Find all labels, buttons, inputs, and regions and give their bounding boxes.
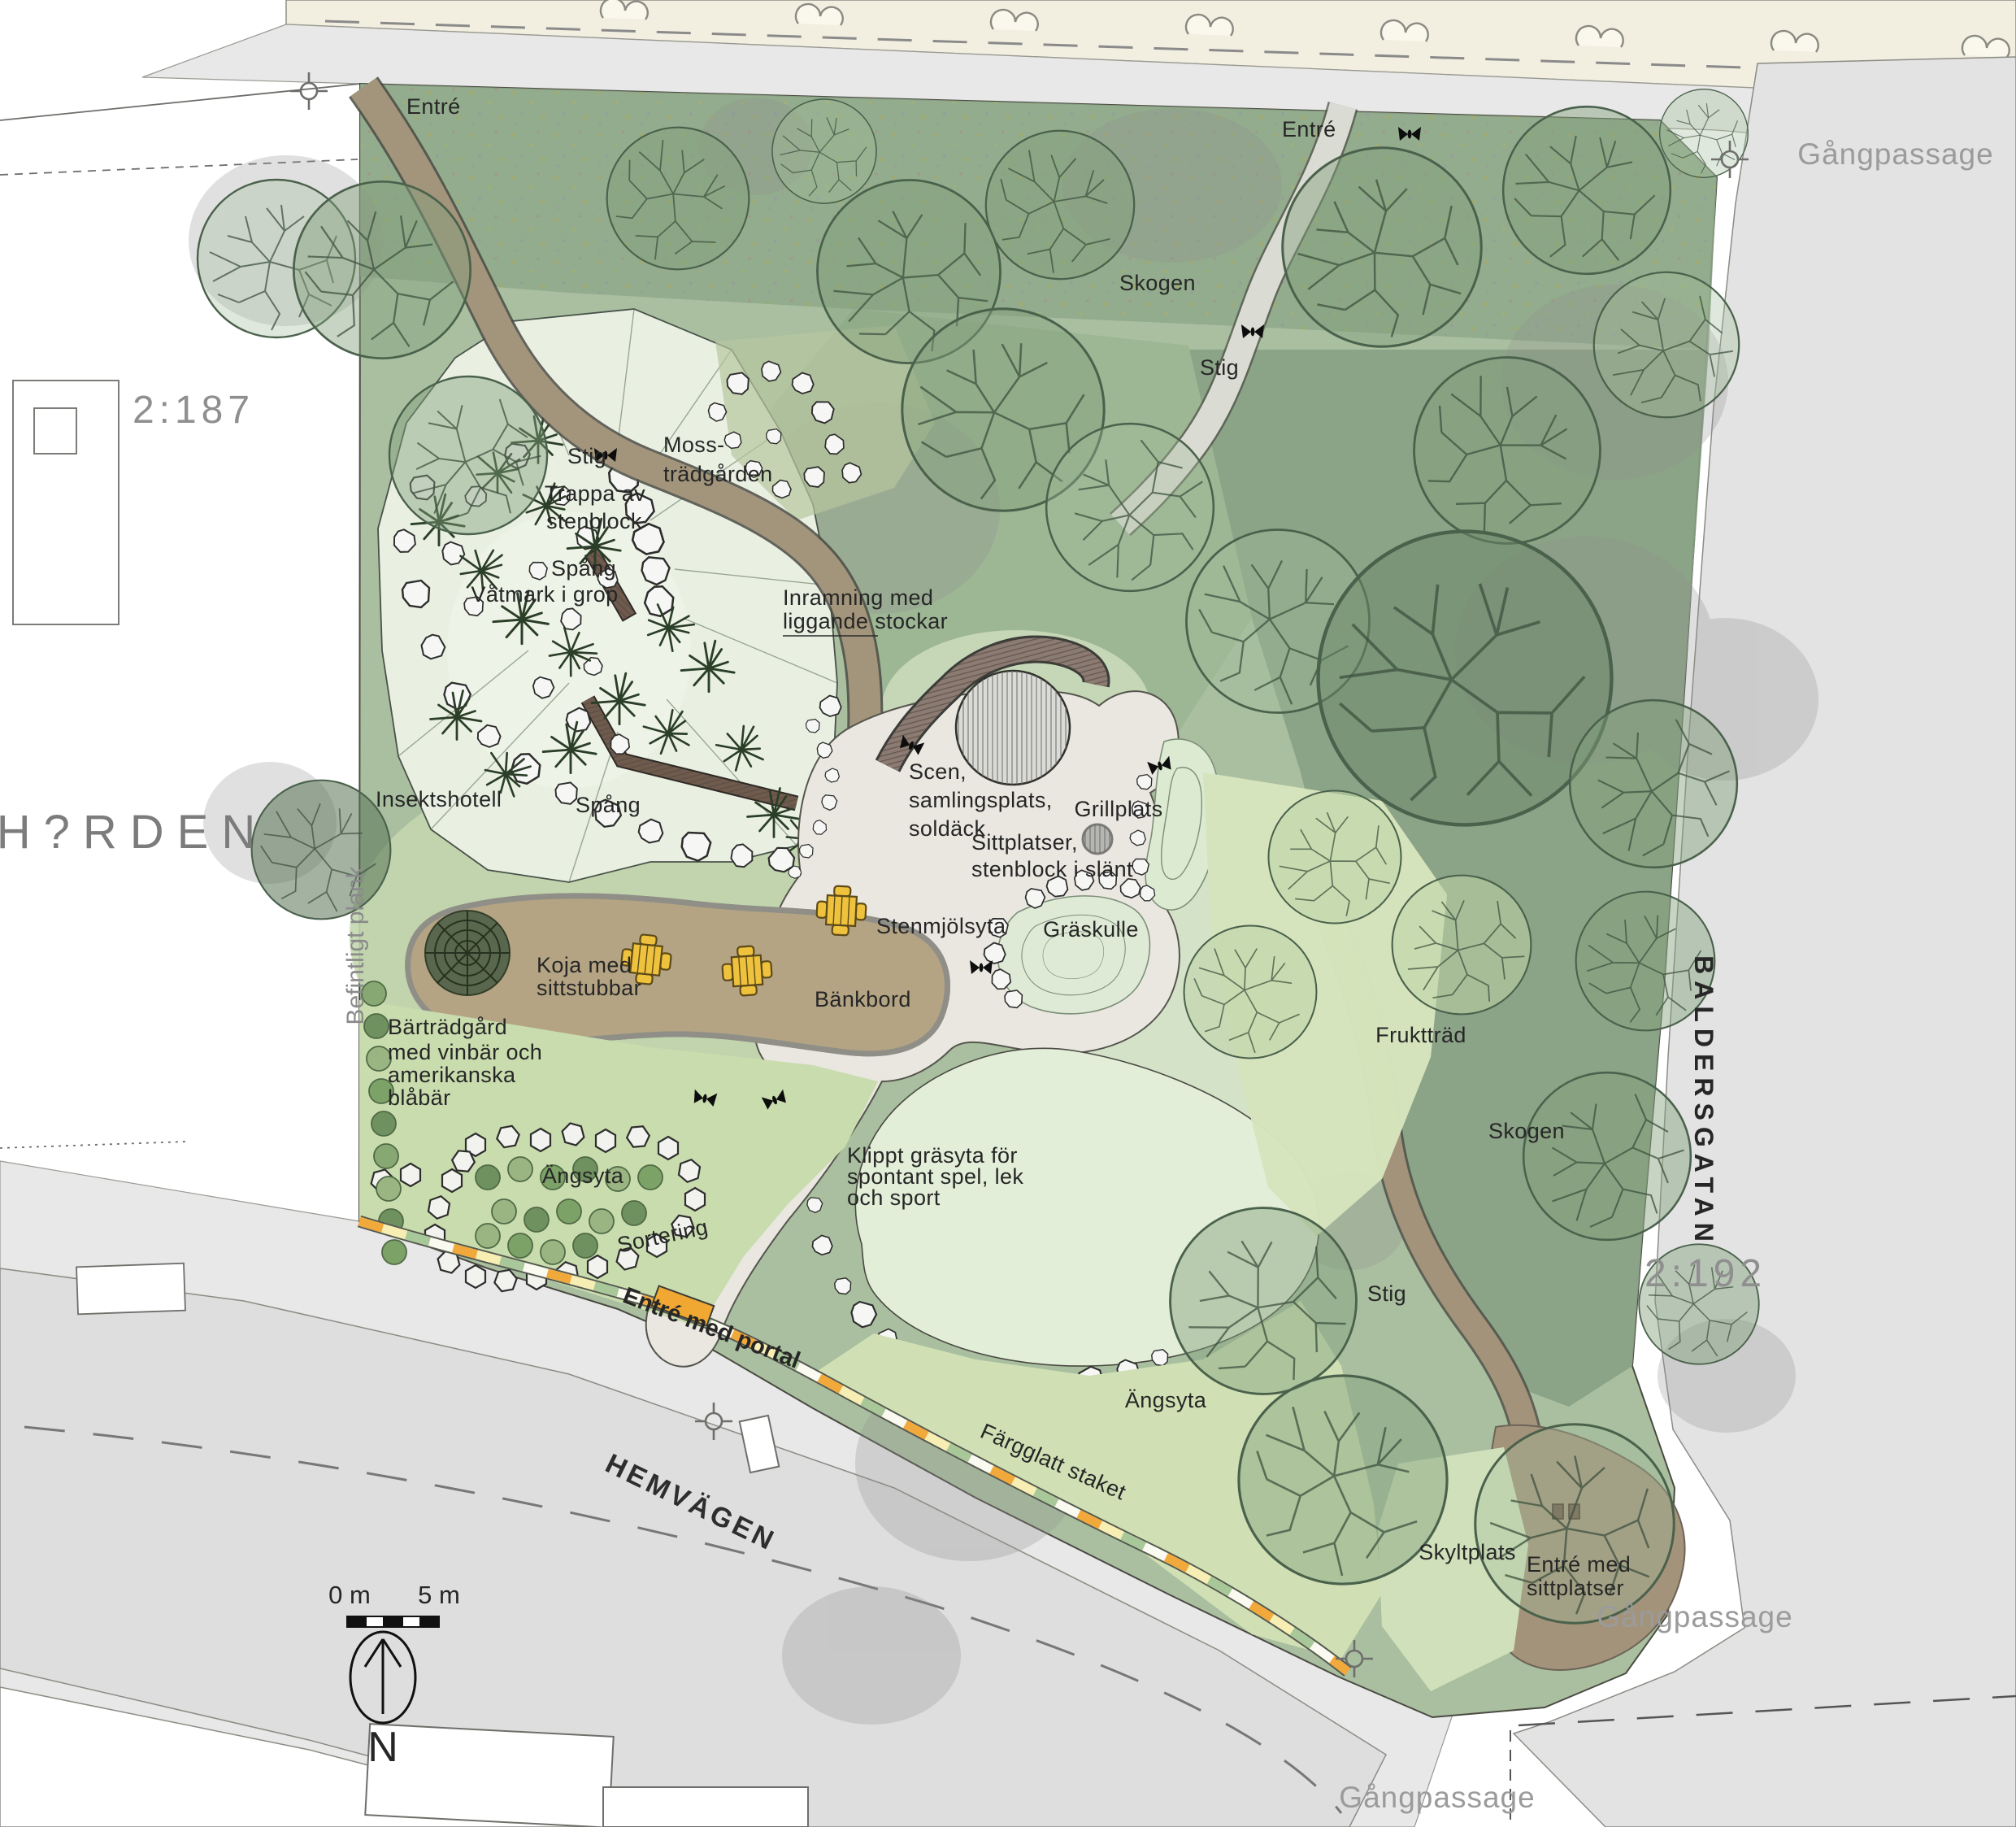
label-bartradgard-3: amerikanska	[388, 1063, 516, 1087]
label-bartradgard-2: med vinbär och	[388, 1040, 542, 1064]
label-stenmjolsyta: Stenmjölsyta	[876, 914, 1006, 938]
label-angsyta-s: Ängsyta	[1125, 1388, 1207, 1412]
label-skyltplats: Skyltplats	[1419, 1540, 1516, 1564]
site-plan: Entré Entré Gångpassage Skogen Stig 2:18…	[0, 0, 2016, 1827]
label-baldersgatan: BALDERSGATAN	[1689, 955, 1718, 1248]
label-entre-nw: Entré	[406, 94, 461, 119]
label-inramning-2: liggande stockar	[783, 609, 948, 633]
label-sittplatser-1: Sittplatser,	[971, 830, 1078, 855]
label-moss-2: trädgården	[663, 462, 773, 486]
building	[603, 1787, 808, 1827]
label-stig-n: Stig	[1200, 355, 1239, 380]
label-scen-1: Scen,	[909, 759, 967, 784]
label-parcel-2187: 2:187	[133, 389, 254, 432]
label-harden: H?RDEN	[0, 806, 268, 859]
label-befintligt-plank: Befintligt plank	[342, 865, 369, 1024]
koja-hut	[425, 911, 510, 995]
label-north: N	[367, 1724, 398, 1771]
stage-scen	[956, 671, 1070, 785]
label-sittplatser-2: stenblock i slänt	[971, 857, 1133, 881]
label-parcel-2192: 2:192	[1645, 1252, 1766, 1295]
label-entre-ne: Entré	[1282, 117, 1336, 141]
label-spang-n: Spång	[551, 556, 616, 581]
label-koja-2: sittstubbar	[537, 976, 641, 1000]
label-koja-1: Koja med	[537, 953, 632, 977]
label-gangpassage-e: Gångpassage	[1597, 1600, 1792, 1633]
label-bartradgard-1: Bärträdgård	[388, 1015, 507, 1039]
label-bartradgard-4: blåbär	[388, 1085, 450, 1110]
label-stig-se: Stig	[1367, 1281, 1406, 1306]
label-fruktrad: Fruktträd	[1375, 1023, 1466, 1047]
label-skogen-n: Skogen	[1119, 271, 1196, 295]
label-spang-s: Spång	[576, 793, 641, 817]
label-trappa-2: stenblock	[546, 509, 642, 533]
label-grillplats: Grillplats	[1074, 797, 1162, 821]
label-bankbord: Bänkbord	[815, 987, 911, 1011]
label-graskulle: Gräskulle	[1043, 917, 1139, 942]
label-entre-sitt-2: sittplatser	[1527, 1576, 1624, 1600]
building	[365, 1724, 613, 1827]
label-skogen-e: Skogen	[1488, 1119, 1565, 1143]
label-stig-w: Stig	[567, 444, 606, 468]
label-vatmark: Våtmark i grop	[471, 582, 618, 607]
label-moss-1: Moss-	[663, 433, 725, 457]
label-inramning-1: Inramning med	[783, 585, 933, 610]
grill-spot	[1083, 824, 1112, 854]
label-trappa-1: Trappa av	[545, 481, 645, 506]
label-gangpassage-ne: Gångpassage	[1797, 137, 1993, 171]
label-angsyta-w: Ängsyta	[542, 1164, 624, 1188]
label-insektshotell: Insektshotell	[376, 787, 502, 811]
label-klippt-3: och sport	[847, 1185, 941, 1210]
label-gangpassage-s: Gångpassage	[1339, 1781, 1535, 1814]
label-scale-5: 5 m	[418, 1581, 460, 1609]
label-scale-0: 0 m	[328, 1581, 371, 1609]
scale-bar	[347, 1616, 439, 1627]
label-entre-sitt-1: Entré med	[1527, 1552, 1631, 1577]
label-scen-2: samlingsplats,	[909, 788, 1053, 812]
